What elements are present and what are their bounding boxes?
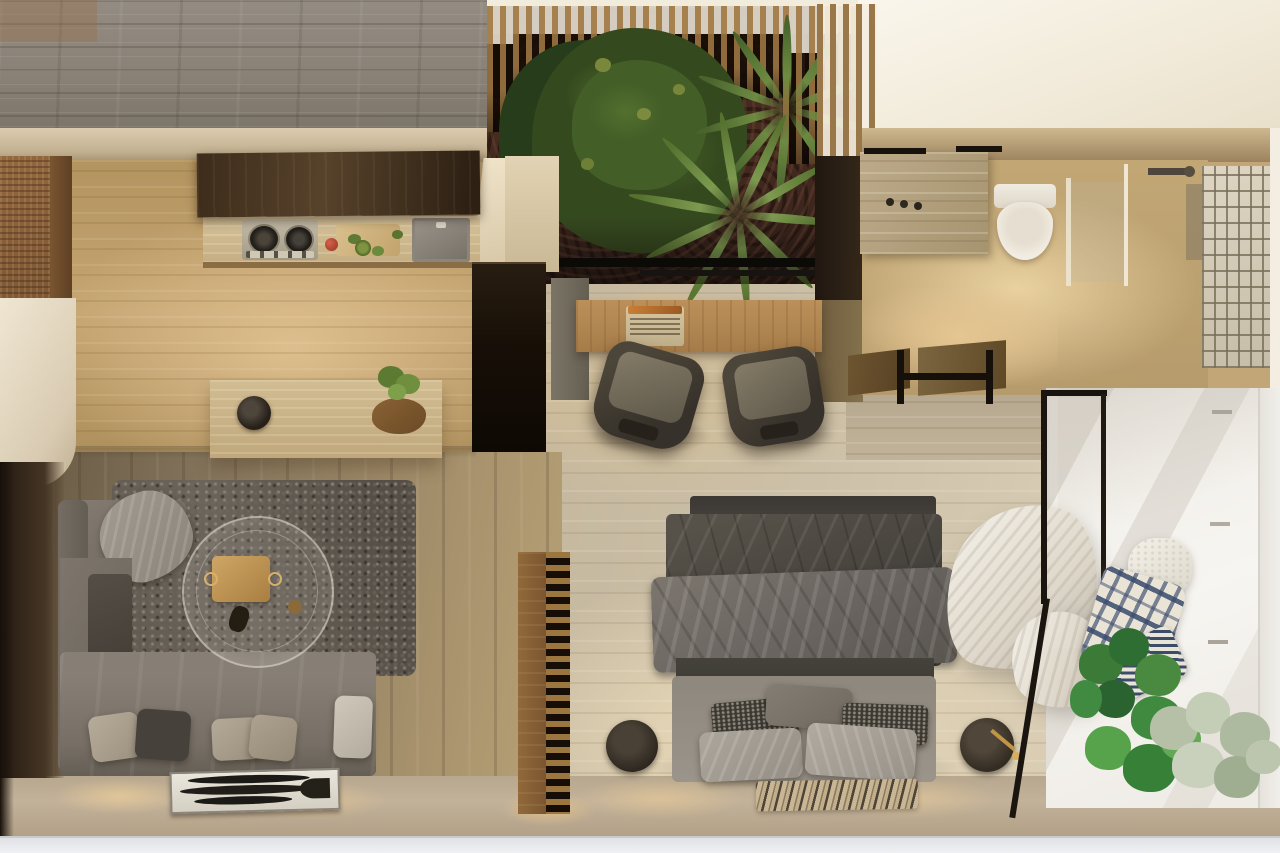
- cooktop-knobs: [246, 251, 314, 258]
- bench-rail: [897, 373, 993, 380]
- light-pillow-right: [804, 722, 917, 782]
- shower-head: [1184, 166, 1195, 177]
- laptop-keyboard: [630, 318, 680, 336]
- herb-sprig: [372, 246, 384, 256]
- faucet-knob: [886, 198, 894, 206]
- left-frame-shadow: [0, 462, 14, 836]
- leaf: [581, 158, 594, 170]
- sofa-pillow-dark: [134, 708, 191, 762]
- artwork-leaf-shape: [179, 783, 313, 796]
- light-pillow-left: [699, 727, 803, 782]
- leaf-on-glass: [1070, 680, 1102, 718]
- brass-tray: [212, 556, 270, 602]
- leaf: [637, 108, 651, 120]
- shower-glass-edge-2: [1124, 164, 1128, 286]
- kitchen-sink: [412, 218, 470, 262]
- plant-tray: [372, 398, 426, 434]
- exterior-walkway-strip: [0, 836, 1280, 853]
- tall-dark-cabinet: [472, 262, 546, 452]
- tray-cup: [288, 600, 302, 614]
- glass-block-wall: [1202, 166, 1272, 368]
- rattan-cabinet: [0, 156, 56, 306]
- monstera-leaf: [1135, 654, 1181, 696]
- artwork-leaf-shape: [194, 795, 292, 806]
- burner-left: [248, 224, 280, 254]
- travertine-vanity: [860, 152, 988, 254]
- leaning-artwork: [169, 768, 340, 814]
- pale-leaf: [1246, 740, 1280, 774]
- kitchen-corner-wall-2: [505, 156, 559, 272]
- glass-door-frame-left: [1041, 390, 1047, 604]
- bedside-pouf-left: [606, 720, 658, 772]
- bathroom-right-edge: [1270, 128, 1280, 396]
- faucet: [436, 222, 446, 228]
- vanity-wall-trim: [864, 148, 926, 154]
- tree-canopy-highlight: [572, 60, 707, 190]
- artwork-leaf-shape: [188, 774, 310, 785]
- oak-desk: [576, 300, 822, 352]
- desk-chair-right: [719, 343, 829, 451]
- rattan-cabinet-edge: [50, 156, 72, 308]
- sofa-pillow-beige: [87, 711, 143, 764]
- leaf: [673, 84, 685, 95]
- vanity-wall-trim: [956, 146, 1002, 152]
- glass-door-frame-top: [1041, 390, 1107, 396]
- burner-right: [284, 225, 314, 254]
- apartment-top-down-render: [0, 0, 1280, 853]
- leaf: [595, 58, 611, 72]
- kitchen-counter-edge: [203, 262, 480, 268]
- railing-bracket: [1210, 522, 1230, 526]
- potted-herb-leaves: [388, 384, 406, 400]
- sofa-pillow-white: [333, 695, 373, 758]
- range-hood: [197, 151, 481, 218]
- double-bed: [666, 496, 942, 782]
- laptop: [626, 306, 684, 346]
- railing-bracket: [1212, 410, 1232, 414]
- slatted-divider-wood: [518, 552, 546, 814]
- fruit-bowl: [237, 396, 271, 430]
- sofa-folded-cushion: [88, 574, 132, 658]
- laptop-screen: [628, 306, 682, 314]
- tomato: [325, 238, 338, 251]
- tray-handle: [268, 572, 282, 586]
- herb-sprig: [392, 230, 403, 239]
- artwork-leaf-shape: [300, 778, 331, 799]
- slatted-divider-slats: [546, 552, 570, 814]
- bathroom-dividing-cabinet: [815, 130, 863, 308]
- wood-corner-panel: [0, 0, 97, 42]
- tray-handle: [204, 572, 218, 586]
- railing-bracket: [1208, 640, 1228, 644]
- gas-cooktop: [242, 220, 318, 260]
- faucet-knob: [900, 200, 908, 208]
- bathroom-skylight-white: [858, 0, 1280, 130]
- curved-white-wall: [0, 298, 76, 488]
- sofa-pillow-beige: [248, 714, 298, 763]
- patterned-runner-rug: [756, 779, 918, 812]
- bowl-of-greens: [355, 240, 371, 256]
- shower-glass-panel: [1071, 182, 1125, 282]
- hall-travertine-strip: [846, 390, 1058, 460]
- faucet-spout: [914, 202, 922, 210]
